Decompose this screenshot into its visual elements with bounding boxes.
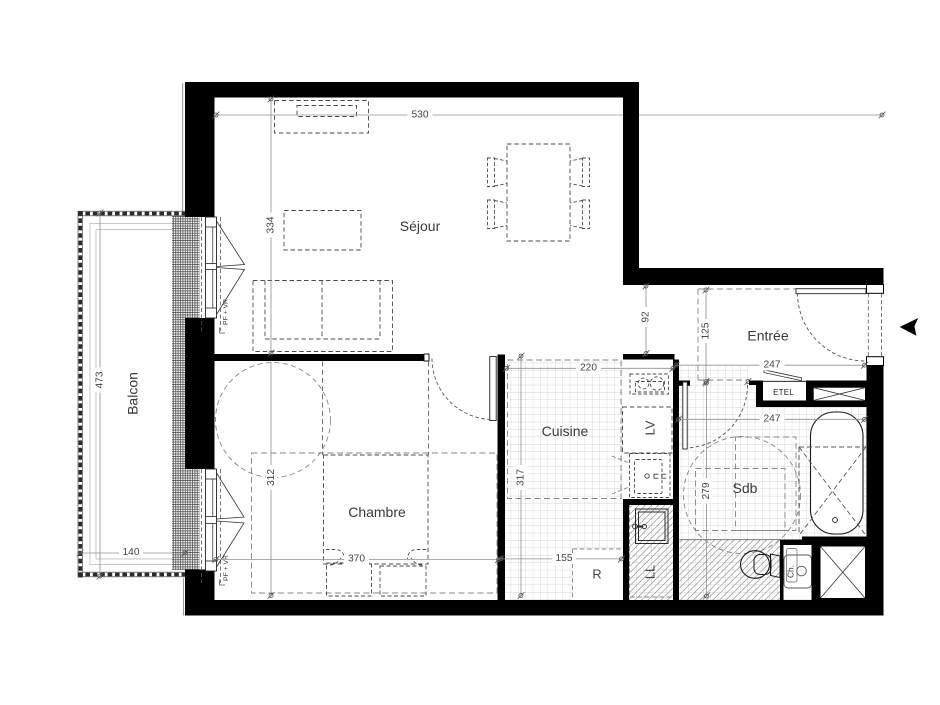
svg-text:317: 317 xyxy=(516,469,527,486)
svg-text:LV: LV xyxy=(643,420,658,435)
svg-text:Balcon: Balcon xyxy=(125,372,141,415)
svg-text:92: 92 xyxy=(641,311,652,323)
svg-text:370: 370 xyxy=(348,554,365,565)
svg-text:LL: LL xyxy=(643,565,658,579)
svg-text:140: 140 xyxy=(123,547,140,558)
svg-text:125: 125 xyxy=(701,322,712,339)
svg-text:Ch.: Ch. xyxy=(786,565,796,578)
svg-text:Cuisine: Cuisine xyxy=(542,423,589,439)
svg-text:530: 530 xyxy=(412,109,429,120)
svg-text:220: 220 xyxy=(580,363,597,374)
svg-text:247: 247 xyxy=(764,359,781,370)
svg-text:155: 155 xyxy=(556,553,573,564)
svg-text:473: 473 xyxy=(95,371,106,388)
svg-text:247: 247 xyxy=(764,414,781,425)
svg-text:Entrée: Entrée xyxy=(747,328,788,344)
svg-text:279: 279 xyxy=(701,482,712,499)
svg-text:312: 312 xyxy=(266,469,277,486)
svg-text:PF + VR: PF + VR xyxy=(223,555,230,581)
svg-text:PF + VR: PF + VR xyxy=(223,299,230,325)
svg-text:R: R xyxy=(592,567,601,582)
svg-text:334: 334 xyxy=(266,216,277,233)
svg-text:Séjour: Séjour xyxy=(400,218,441,234)
svg-text:ETEL: ETEL xyxy=(773,388,794,397)
svg-text:Sdb: Sdb xyxy=(733,480,758,496)
svg-text:Chambre: Chambre xyxy=(348,504,406,520)
